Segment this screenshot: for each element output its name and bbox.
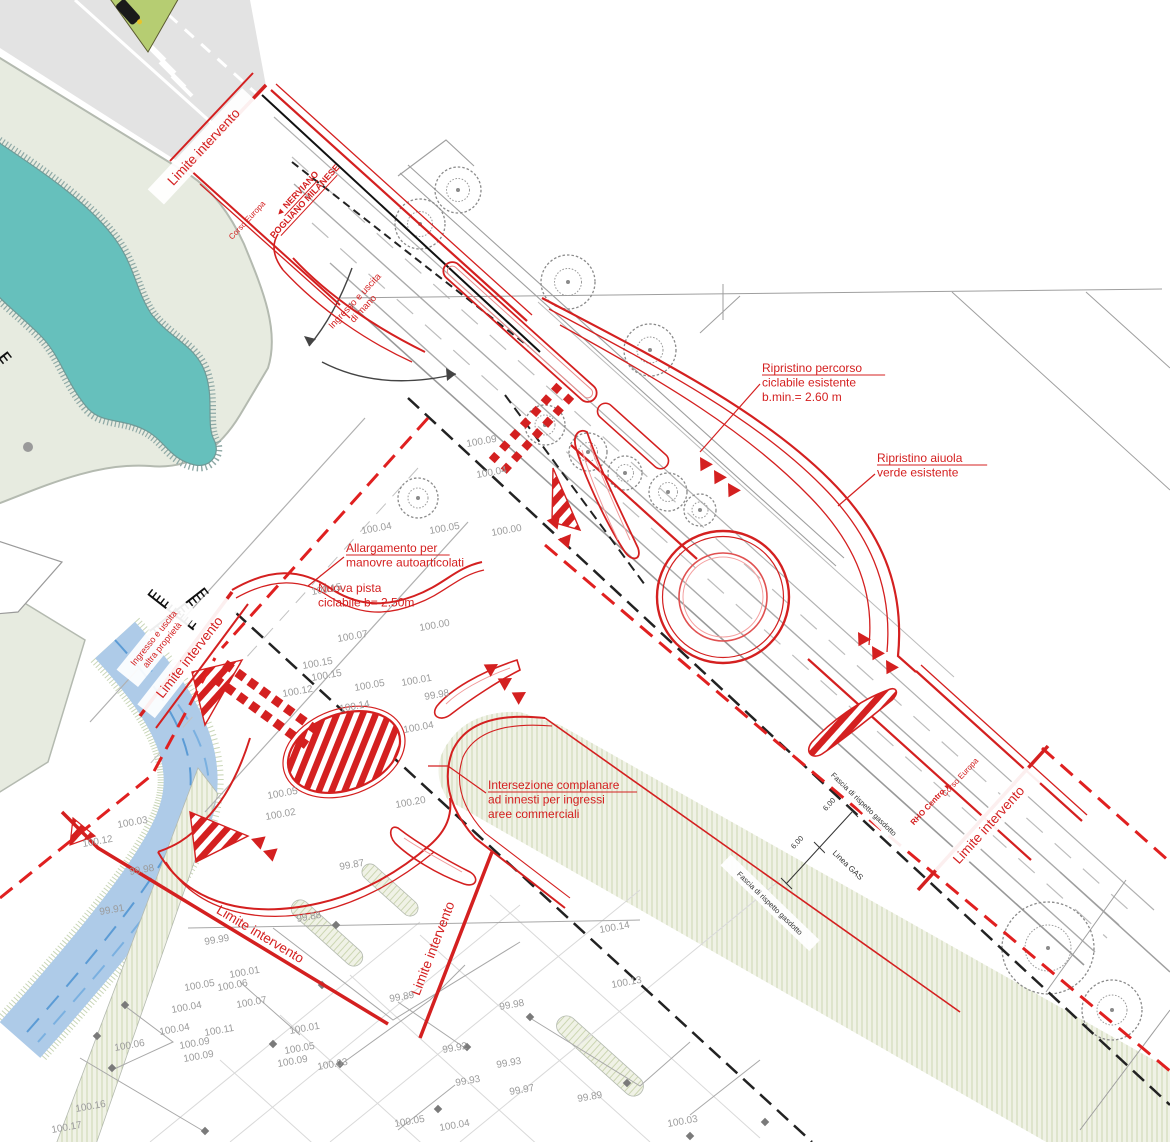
roundabout — [657, 531, 789, 663]
tree-icon — [435, 167, 481, 213]
survey-point-marker — [434, 1105, 442, 1113]
elevation-label: 100.06 — [217, 978, 249, 994]
elevation-label: 100.05 — [184, 978, 216, 994]
elevation-label: 99.98 — [499, 998, 526, 1013]
annotation-text: 6.00 — [789, 834, 805, 851]
elevation-label: 100.05 — [354, 678, 386, 694]
elevation-label: 99.92 — [442, 1041, 469, 1056]
pole-marker — [23, 442, 33, 452]
annotation-ripristino-aiuola: Ripristino aiuolaverde esistente — [877, 451, 987, 479]
elevation-label: 100.07 — [236, 995, 268, 1011]
site-plan-drawing: Limite intervento◄ NERVIANOPOGLIANO MILA… — [0, 0, 1170, 1142]
left-road-lines — [90, 418, 468, 812]
elevation-label: 100.03 — [667, 1114, 699, 1130]
tree-icon — [649, 473, 687, 511]
elevation-label: 100.15 — [311, 668, 343, 684]
elevation-label: 100.02 — [265, 807, 297, 823]
elevation-label: 100.00 — [419, 618, 451, 634]
elevation-label: 99.98 — [424, 688, 451, 703]
tree-icon — [684, 494, 716, 526]
elevation-label: 99.89 — [389, 990, 416, 1005]
annotation-rho-centro: RHO Centro ► — [909, 780, 954, 827]
survey-point-marker — [201, 1127, 209, 1135]
elevation-label: 100.07 — [337, 629, 369, 645]
elevation-label: 100.20 — [395, 795, 427, 811]
elevation-label: 100.04 — [476, 465, 508, 481]
elevation-label: 99.89 — [577, 1090, 604, 1105]
tree-icon — [608, 456, 642, 490]
elevation-label: 100.04 — [159, 1022, 191, 1038]
elevation-label: 100.09 — [277, 1054, 309, 1070]
annotation-ripristino-percorso: Ripristino percorsociclabile esistenteb.… — [762, 361, 885, 404]
elevation-label: 100.05 — [394, 1114, 426, 1130]
elevation-label: 99.87 — [339, 858, 366, 873]
red-arrow-marker — [251, 832, 270, 851]
elevation-label: 100.01 — [289, 1021, 321, 1037]
elevation-label: 99.93 — [496, 1056, 523, 1071]
red-arrow-marker — [698, 457, 714, 473]
elevation-label: 100.05 — [267, 786, 299, 802]
annotation-text: Limite intervento — [950, 783, 1027, 867]
green-wedge — [0, 585, 85, 795]
elevation-label: 99.97 — [509, 1083, 536, 1098]
white-building-wedge — [0, 540, 62, 614]
red-arrow-marker — [712, 470, 728, 486]
red-arrow-marker — [870, 646, 886, 662]
survey-point-marker — [269, 1040, 277, 1048]
red-arrow-marker — [263, 844, 282, 863]
annotation-text: ◄ NERVIANOPOGLIANO MILANESE — [260, 155, 341, 240]
elevation-label: 100.04 — [171, 1000, 203, 1016]
elevation-label: 99.93 — [455, 1074, 482, 1089]
tree-icon — [398, 478, 438, 518]
edge-line — [262, 95, 540, 352]
elevation-label: 100.00 — [491, 523, 523, 539]
top-parking-band — [398, 140, 844, 566]
annotation-text: RHO Centro ► — [909, 780, 954, 827]
red-arrow-marker — [510, 690, 526, 706]
survey-point-marker — [761, 1118, 769, 1126]
elevation-label: 100.09 — [466, 434, 498, 450]
elevation-label: 100.04 — [361, 521, 393, 537]
annotation-dim-600-b: 6.00 — [789, 834, 805, 851]
annotation-text: Ripristino percorsociclabile esistenteb.… — [762, 361, 862, 404]
annotation-dim-600-a: 6.00 — [821, 796, 837, 813]
plan-canvas: Limite intervento◄ NERVIANOPOGLIANO MILA… — [0, 0, 1170, 1142]
elevation-label: 100.03 — [117, 815, 149, 831]
elevation-label: 100.04 — [403, 720, 435, 736]
elevation-label: 100.13 — [611, 975, 643, 991]
tree-icon — [1002, 902, 1094, 994]
elevation-label: 100.09 — [183, 1049, 215, 1065]
red-arrow-marker — [726, 483, 742, 499]
elevation-label: 100.04 — [439, 1118, 471, 1134]
elevation-label: 100.14 — [599, 920, 631, 936]
tree-icon — [624, 324, 676, 376]
survey-point-marker — [686, 1132, 694, 1140]
red-arrow-marker — [482, 662, 498, 678]
elevation-label: 100.01 — [401, 673, 433, 689]
annotation-text: 6.00 — [821, 796, 837, 813]
annotation-direction-nerviano: ◄ NERVIANOPOGLIANO MILANESE — [260, 155, 342, 241]
elevation-label: 99.99 — [204, 933, 231, 948]
annotation-text: Fascia di rispetto gasdotto — [829, 771, 898, 838]
elevation-label: 100.03 — [317, 1057, 349, 1073]
